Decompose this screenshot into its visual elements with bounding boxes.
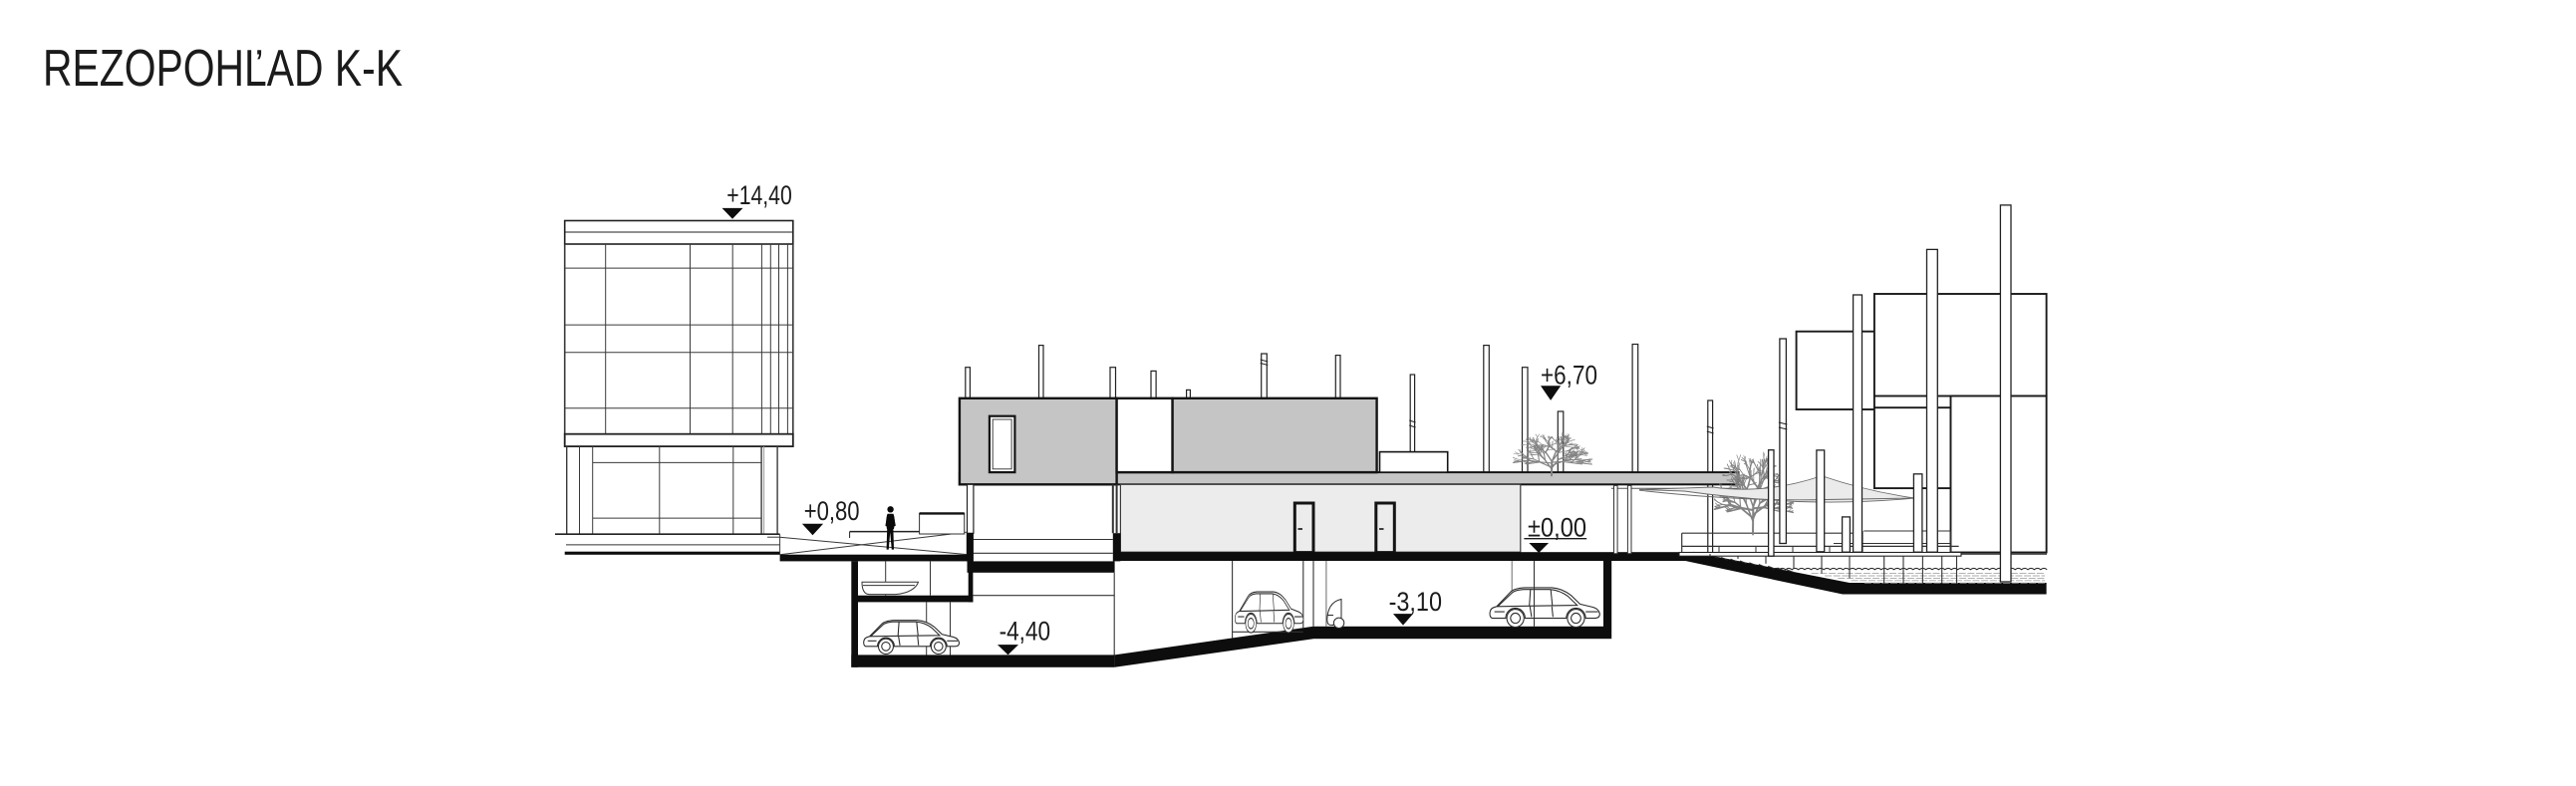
svg-text:±0,00: ±0,00: [1528, 512, 1586, 542]
svg-text:REZOPOHĽAD K-K: REZOPOHĽAD K-K: [43, 40, 403, 98]
svg-text:-4,40: -4,40: [1000, 617, 1051, 647]
svg-text:+6,70: +6,70: [1541, 360, 1597, 390]
svg-text:+14,40: +14,40: [726, 180, 792, 210]
svg-text:+0,80: +0,80: [804, 496, 860, 526]
svg-text:-3,10: -3,10: [1389, 587, 1442, 617]
